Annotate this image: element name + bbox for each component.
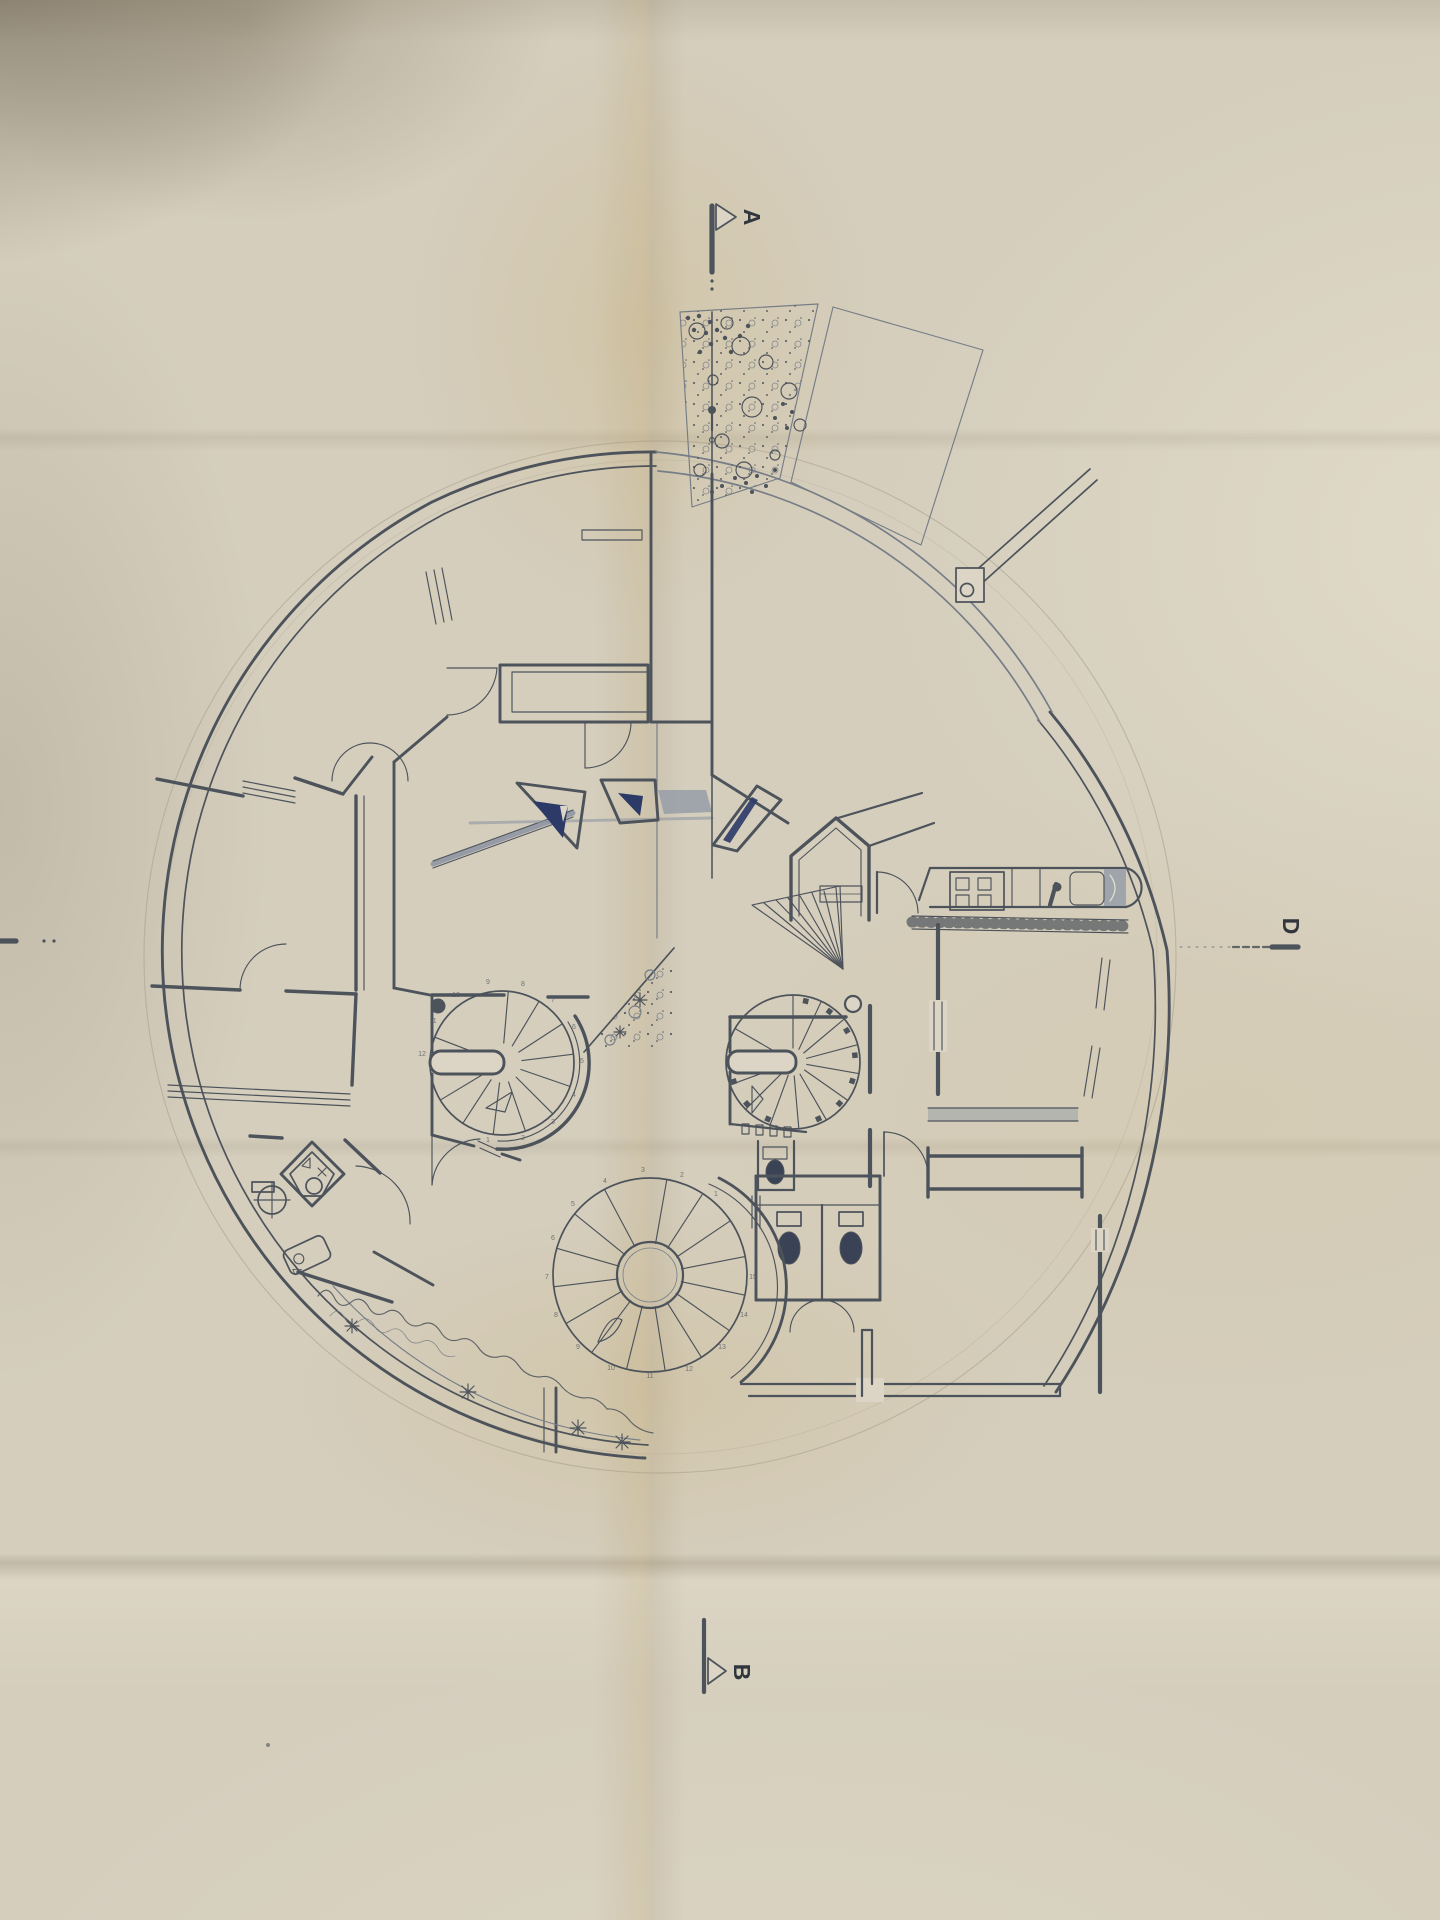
svg-text:7: 7 (551, 997, 555, 1004)
direction-arrow (486, 1092, 512, 1112)
construction-circles (144, 441, 1176, 1473)
svg-text:3: 3 (641, 1167, 645, 1174)
svg-text:15: 15 (749, 1274, 757, 1281)
floor-plan-drawing: 1 2 3 4 5 6 7 8 9 10 11 12 (0, 0, 1440, 1920)
svg-text:10: 10 (607, 1365, 615, 1372)
svg-text:3: 3 (551, 1119, 555, 1126)
section-label-d: D (1278, 918, 1304, 935)
svg-text:7: 7 (545, 1274, 549, 1281)
svg-text:1: 1 (486, 1137, 490, 1144)
svg-text:11: 11 (646, 1373, 653, 1380)
svg-text:4: 4 (603, 1178, 607, 1185)
top-left-room (426, 452, 651, 722)
svg-text:10: 10 (452, 992, 460, 999)
svg-text:2: 2 (521, 1135, 525, 1142)
section-marker-b: B (704, 1620, 755, 1692)
bottom-stair-step-numbers: 1 2 3 4 5 6 7 8 9 10 11 12 13 14 15 (545, 1167, 757, 1380)
svg-text:5: 5 (571, 1201, 575, 1208)
svg-text:6: 6 (551, 1235, 555, 1242)
entry-hall (332, 717, 712, 995)
svg-text:12: 12 (685, 1366, 693, 1373)
bidet (282, 1234, 333, 1276)
svg-text:9: 9 (486, 979, 490, 986)
toilet (766, 1160, 784, 1184)
winder-stair (752, 886, 843, 969)
hall-planter (584, 948, 674, 1052)
svg-text:13: 13 (718, 1344, 726, 1351)
column (431, 999, 446, 1014)
svg-text:2: 2 (680, 1172, 684, 1179)
direction-arrow (752, 1086, 763, 1113)
svg-text:12: 12 (418, 1051, 426, 1058)
section-label-b: B (729, 1664, 755, 1681)
sink (1070, 872, 1104, 905)
bottom-spiral-stair: 1 2 3 4 5 6 7 8 9 10 11 12 13 14 15 (545, 1167, 786, 1382)
vestibule (585, 474, 788, 823)
wc-block (752, 1132, 928, 1332)
svg-text:6: 6 (572, 1024, 576, 1031)
toilet (840, 1232, 862, 1264)
svg-text:4: 4 (572, 1092, 576, 1099)
terrace-panels (656, 304, 1097, 722)
kitchen (912, 868, 1142, 933)
section-label-a: A (739, 209, 765, 226)
svg-text:9: 9 (576, 1344, 580, 1351)
right-spiral-stair (726, 995, 861, 1137)
central-skylights (517, 780, 781, 851)
pentagon-room (791, 793, 934, 920)
svg-text:1: 1 (714, 1191, 718, 1198)
left-spiral-stair: 1 2 3 4 5 6 7 8 9 10 11 12 (418, 979, 589, 1185)
outer-walls (162, 452, 1169, 1458)
svg-text:8: 8 (521, 981, 525, 988)
paper-sheet: 1 2 3 4 5 6 7 8 9 10 11 12 (0, 0, 1440, 1920)
bathroom (250, 1136, 433, 1302)
svg-text:5: 5 (580, 1058, 584, 1065)
middle-left-rooms (152, 757, 372, 1106)
svg-text:8: 8 (554, 1312, 558, 1319)
right-rooms (870, 925, 1110, 1392)
svg-text:14: 14 (740, 1312, 748, 1319)
bottom-walls (544, 1330, 1060, 1452)
svg-text:11: 11 (429, 1018, 436, 1025)
